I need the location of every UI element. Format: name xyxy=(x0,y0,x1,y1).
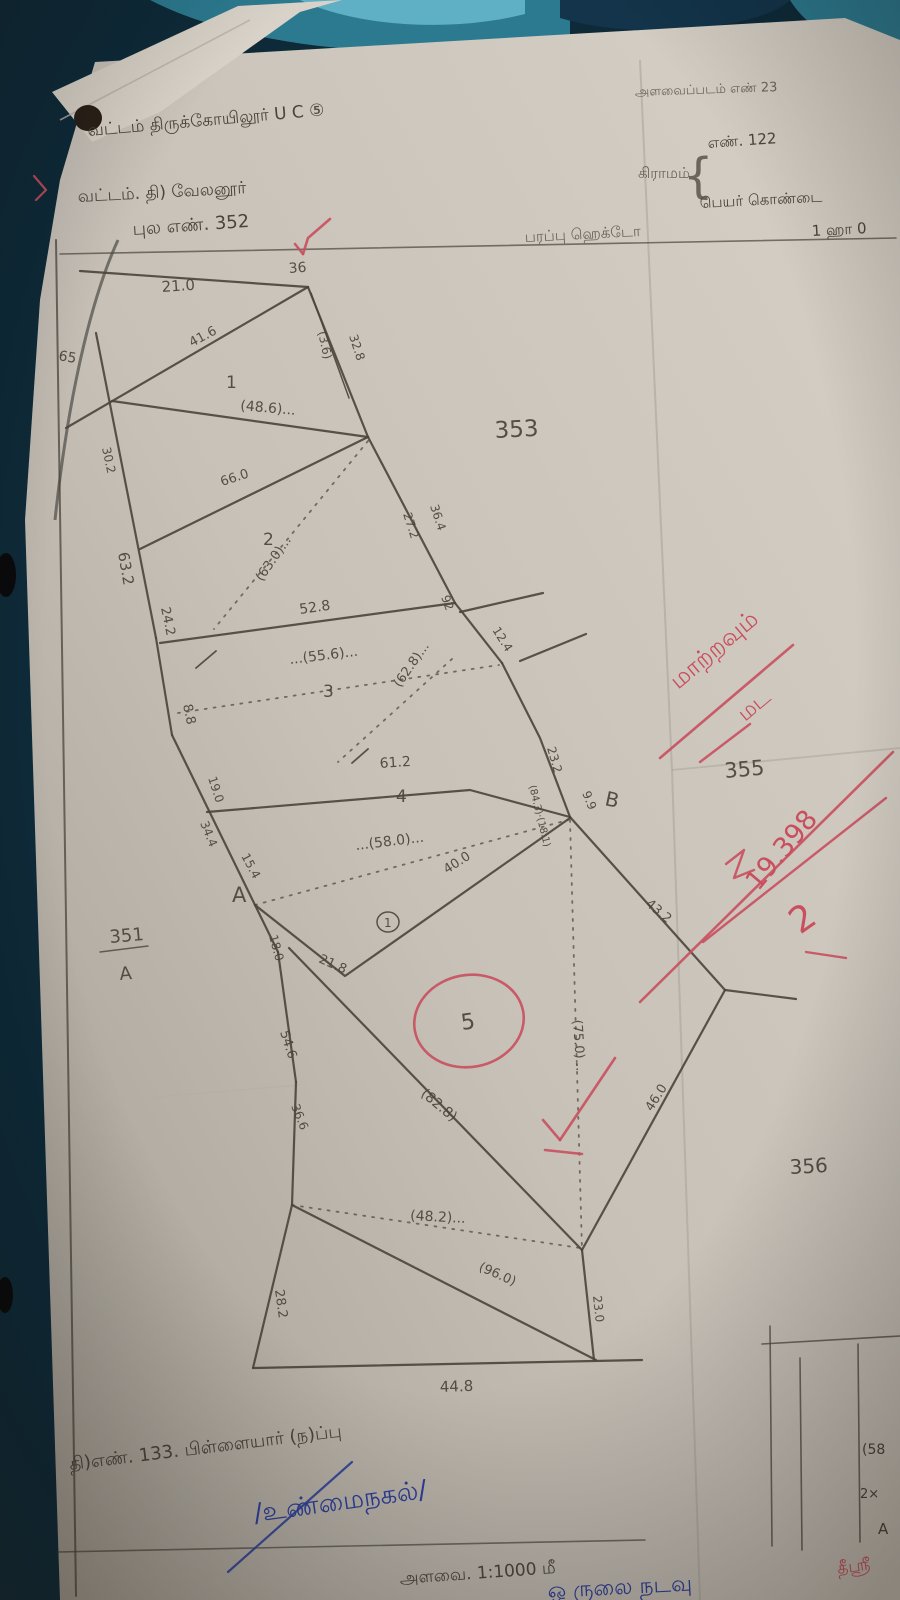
map-measurement-label: 1 xyxy=(384,916,392,930)
map-measurement-label: A xyxy=(119,963,134,985)
map-measurement-label: 353 xyxy=(494,416,539,444)
map-measurement-label: (48.2)... xyxy=(410,1208,466,1227)
map-measurement-label: 4 xyxy=(396,787,407,807)
area-value: 1 ஹா 0 xyxy=(811,219,867,240)
map-measurement-label: 21.0 xyxy=(161,276,196,296)
map-measurement-label: 351 xyxy=(109,924,145,948)
map-measurement-label: 23.0 xyxy=(590,1295,607,1323)
survey-sketch-canvas: அளவைப்படம் எண் 23 எண். 122 கிராமம் { பெய… xyxy=(0,0,900,1600)
side-value-1: (58 xyxy=(862,1442,885,1458)
side-value-2: 2× xyxy=(860,1487,879,1502)
map-measurement-label: 36 xyxy=(288,260,307,277)
map-measurement-label: 65 xyxy=(57,348,77,367)
photo-of-survey-sketch: அளவைப்படம் எண் 23 எண். 122 கிராமம் { பெய… xyxy=(0,0,900,1600)
map-measurement-label: 356 xyxy=(789,1153,828,1179)
map-measurement-label: 61.2 xyxy=(379,754,411,772)
map-measurement-label: A xyxy=(232,883,247,907)
map-measurement-label: 355 xyxy=(723,756,765,783)
map-measurement-label: 3 xyxy=(323,682,334,702)
side-value-3: A xyxy=(878,1520,889,1538)
map-measurement-label: 1 xyxy=(226,373,237,393)
map-measurement-label: 44.8 xyxy=(440,1377,474,1396)
